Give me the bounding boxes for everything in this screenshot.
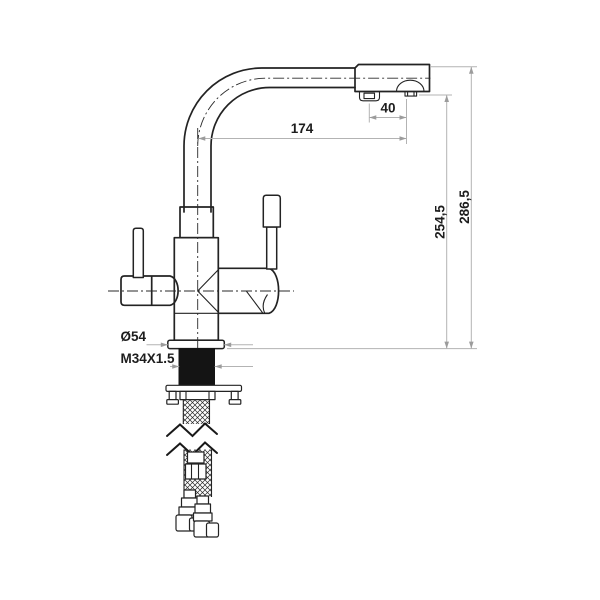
hose-coupling-lower xyxy=(186,464,207,479)
spout-pipe-outer-edge xyxy=(184,68,355,212)
mounting-hardware xyxy=(166,340,242,404)
right-handle-stem xyxy=(267,227,277,269)
dimension-label-254-5: 254,5 xyxy=(433,205,448,239)
washer-plate xyxy=(166,385,242,391)
threaded-shank xyxy=(183,399,209,426)
supply-hoses xyxy=(164,399,222,537)
left-handle-lever xyxy=(133,228,143,277)
dimension-label-174: 174 xyxy=(291,121,314,136)
right-valve xyxy=(218,195,280,313)
bracket-nut xyxy=(180,391,215,399)
dimension-label-286-5: 286,5 xyxy=(457,190,472,224)
spout-pipe-inner-edge xyxy=(211,88,355,213)
dimension-label-diameter: Ø54 xyxy=(121,329,147,344)
dimension-height-to-outlet: 254,5 xyxy=(419,95,452,349)
dimension-spout-reach: 174 xyxy=(198,121,406,141)
left-valve xyxy=(121,228,178,305)
aerator-left xyxy=(360,92,380,101)
hose-fitting-right xyxy=(194,496,219,537)
hose-coupling-upper xyxy=(188,452,205,463)
right-valve-detail xyxy=(247,291,268,313)
base-flange xyxy=(168,340,225,348)
dimension-label-40: 40 xyxy=(380,101,395,116)
aerator-right xyxy=(397,80,425,96)
faucet-body xyxy=(174,207,218,340)
faucet-technical-drawing: 40 174 254,5 286,5 Ø54 xyxy=(0,0,600,600)
dimension-label-thread: M34X1.5 xyxy=(121,351,176,366)
mounting-thread xyxy=(179,349,215,386)
right-handle-grip xyxy=(263,195,280,227)
